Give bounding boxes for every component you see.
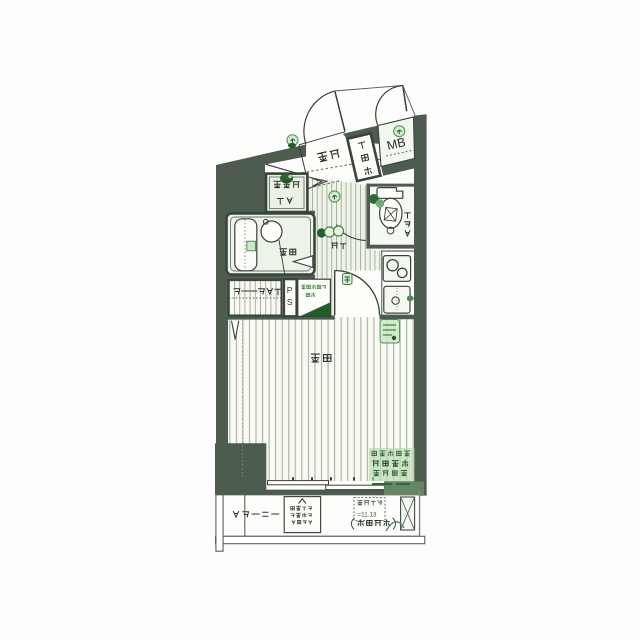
svg-text:=11.13: =11.13 [358,512,377,519]
svg-text:P: P [287,285,293,295]
svg-text:S: S [287,297,293,307]
